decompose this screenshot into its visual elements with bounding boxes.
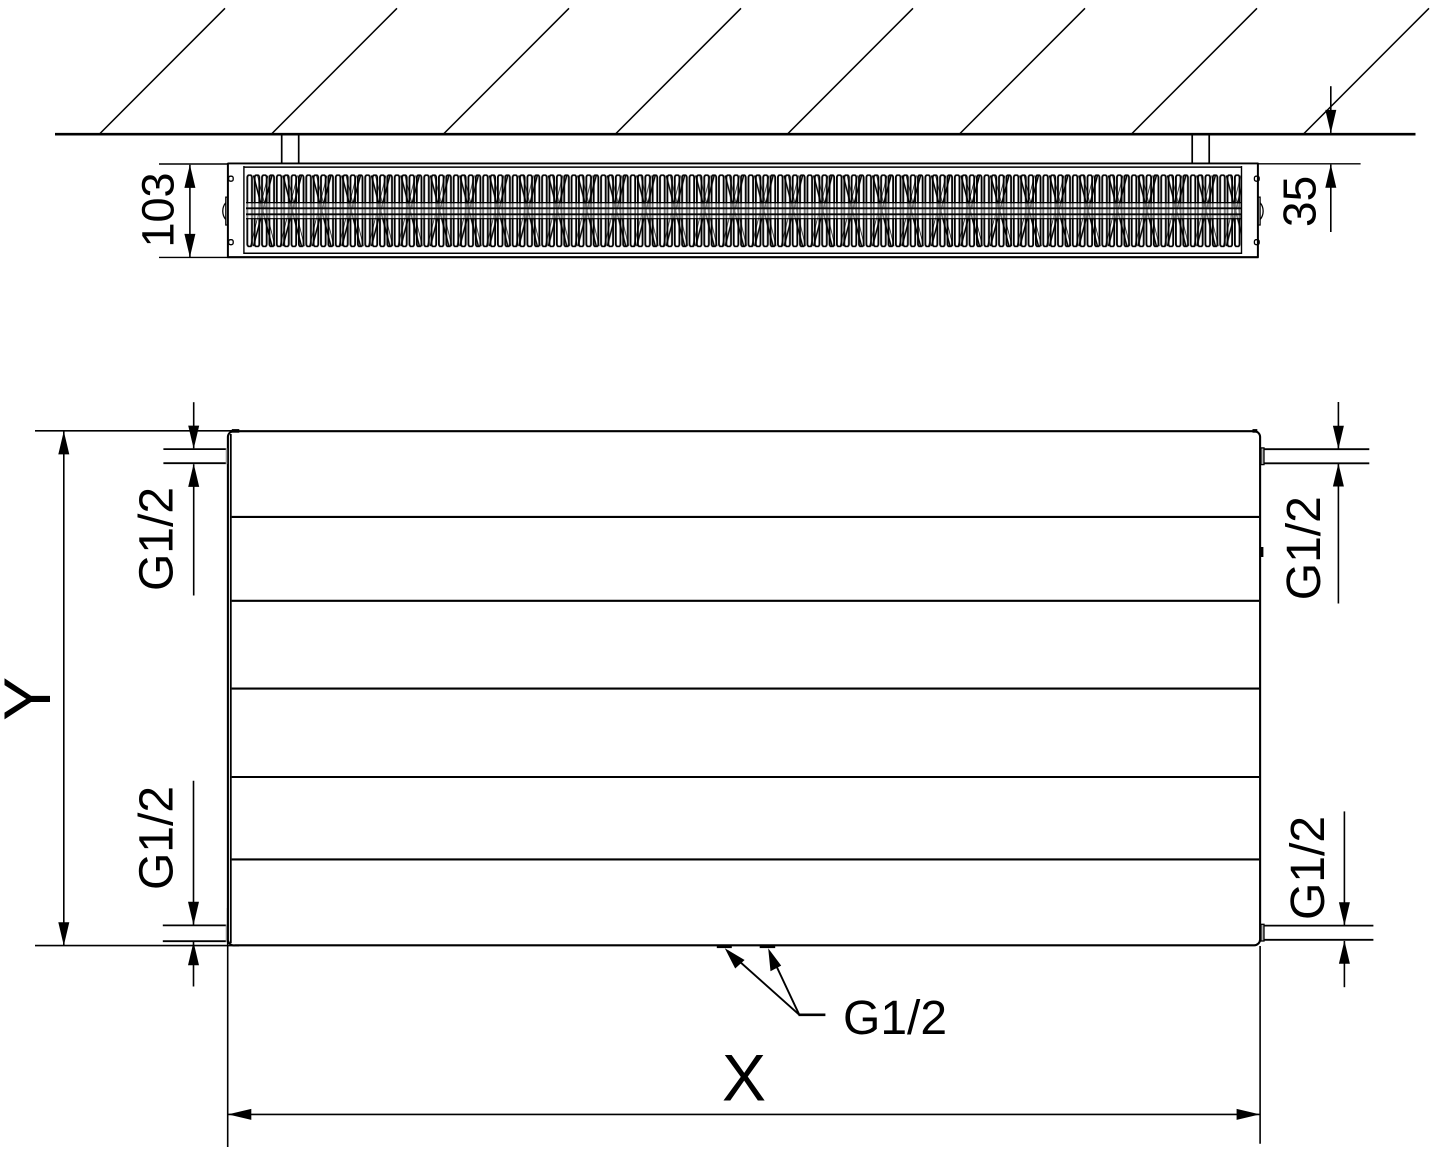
svg-text:G1/2: G1/2 xyxy=(131,786,184,890)
svg-text:X: X xyxy=(722,1041,766,1115)
svg-text:G1/2: G1/2 xyxy=(1282,816,1335,920)
svg-text:G1/2: G1/2 xyxy=(131,487,184,591)
svg-text:35: 35 xyxy=(1273,176,1325,227)
svg-text:Y: Y xyxy=(0,677,64,721)
svg-text:103: 103 xyxy=(133,172,184,247)
svg-text:G1/2: G1/2 xyxy=(1278,496,1331,600)
svg-text:G1/2: G1/2 xyxy=(843,992,947,1045)
